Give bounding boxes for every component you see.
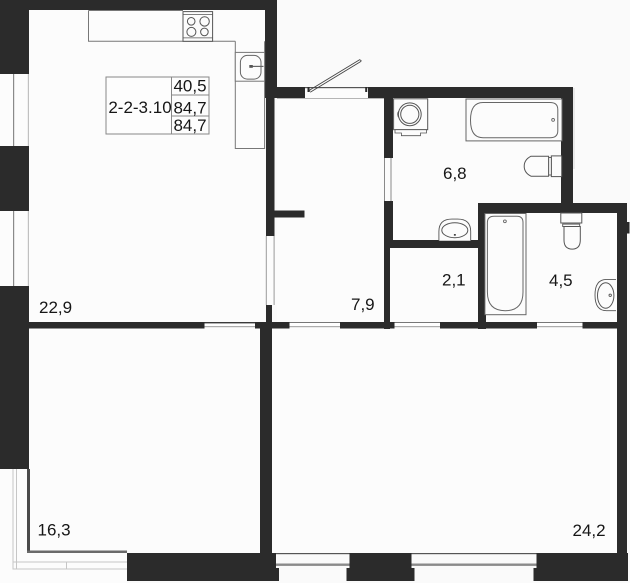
svg-text:6,8: 6,8 xyxy=(443,164,467,183)
svg-text:40,5: 40,5 xyxy=(173,77,206,96)
svg-text:16,3: 16,3 xyxy=(38,521,71,540)
svg-text:2,1: 2,1 xyxy=(442,271,466,290)
svg-text:84,7: 84,7 xyxy=(173,98,206,117)
svg-text:84,7: 84,7 xyxy=(173,116,206,135)
svg-text:2-2-3.10: 2-2-3.10 xyxy=(108,98,171,117)
svg-text:7,9: 7,9 xyxy=(351,295,375,314)
svg-text:4,5: 4,5 xyxy=(549,271,573,290)
svg-text:24,2: 24,2 xyxy=(573,521,606,540)
svg-text:22,9: 22,9 xyxy=(39,298,72,317)
